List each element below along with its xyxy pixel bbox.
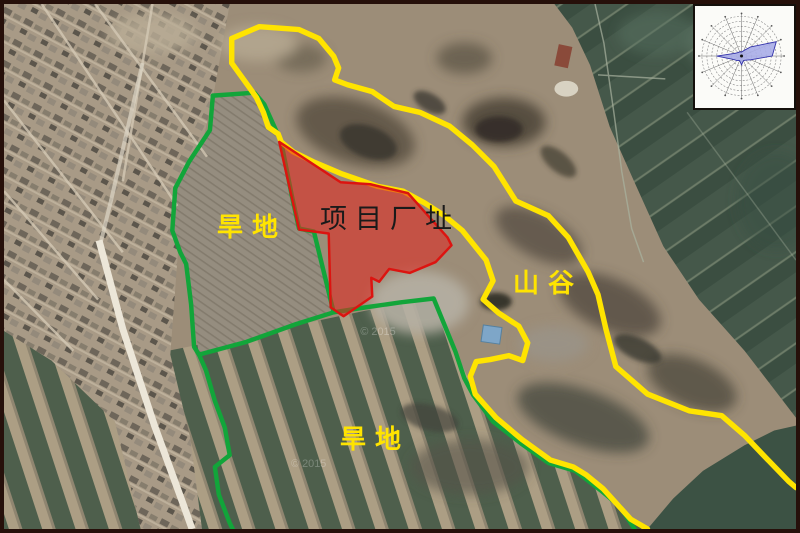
wind-rose-center bbox=[740, 55, 743, 58]
wind-rose-frequency-polygon bbox=[717, 42, 776, 65]
satellite-terrain: © 2015 © 2015 bbox=[4, 4, 796, 529]
sand-patch bbox=[554, 81, 578, 97]
wind-rose bbox=[693, 4, 796, 110]
imagery-watermark: © 2015 bbox=[360, 326, 395, 338]
imagery-watermark: © 2015 bbox=[291, 458, 326, 470]
map-figure: © 2015 © 2015 项目厂址 旱地 旱地 山谷 bbox=[0, 0, 800, 533]
wind-rose-diagram bbox=[695, 6, 794, 108]
blue-pond bbox=[481, 325, 502, 344]
